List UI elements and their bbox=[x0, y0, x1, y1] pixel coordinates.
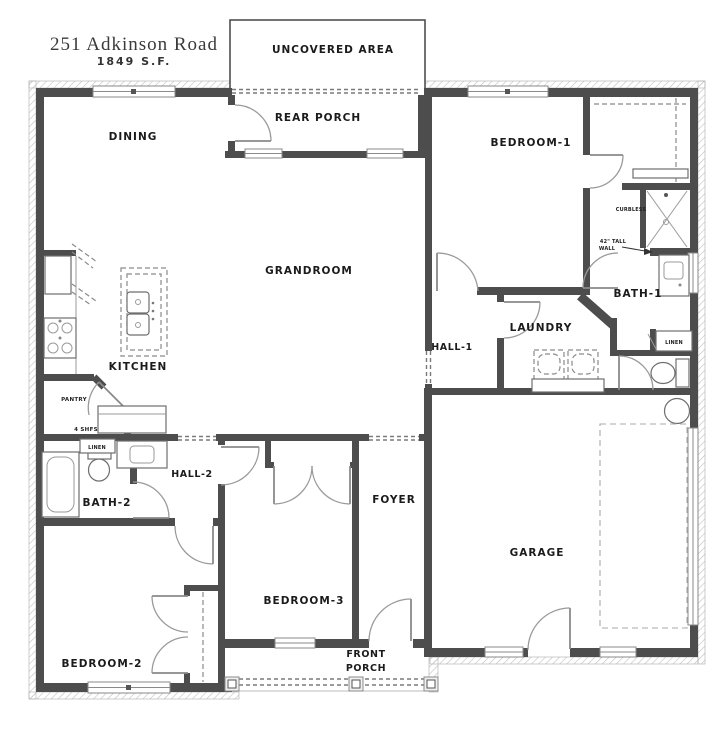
bedroom1-closet-door bbox=[590, 155, 623, 188]
range bbox=[44, 318, 76, 358]
garage-service-door bbox=[528, 608, 570, 650]
garage-label: GARAGE bbox=[510, 547, 565, 559]
front-door bbox=[369, 599, 411, 641]
kitchen-island bbox=[121, 268, 167, 356]
floor-plan-drawing: LINEN LINEN 251 A bbox=[0, 0, 720, 739]
hall1-label: HALL-1 bbox=[431, 342, 473, 353]
bath2-door bbox=[133, 482, 169, 518]
water-heater bbox=[665, 399, 690, 424]
front-porch-label-line2: PORCH bbox=[346, 663, 386, 674]
porch-column bbox=[225, 677, 239, 691]
refrigerator bbox=[45, 256, 71, 294]
tall-wall-label-line2: WALL bbox=[599, 246, 616, 252]
bath2-vanity-sink bbox=[117, 441, 167, 468]
garage-door-track-dashed bbox=[600, 424, 687, 628]
hall2-linen-closet: LINEN bbox=[80, 439, 115, 453]
uncovered-area-label: UNCOVERED AREA bbox=[272, 44, 394, 56]
bedroom3-window bbox=[275, 638, 315, 648]
garage-window-right bbox=[600, 647, 636, 657]
pantry-label: PANTRY bbox=[61, 397, 88, 403]
plan-address: 251 Adkinson Road bbox=[50, 34, 218, 55]
bath2-label: BATH-2 bbox=[83, 497, 132, 509]
tall-wall-label-line1: 42" TALL bbox=[600, 239, 627, 245]
bedroom2-closet-doors bbox=[152, 596, 188, 673]
floor-plan-page: LINEN LINEN 251 A bbox=[0, 0, 720, 739]
bedroom3-label: BEDROOM-3 bbox=[264, 595, 345, 607]
cased-openings bbox=[178, 351, 431, 440]
bath1-toilet bbox=[651, 359, 689, 387]
linen-hall2-label: LINEN bbox=[88, 445, 106, 451]
porch-column bbox=[349, 677, 363, 691]
garage-side-door-panel bbox=[688, 428, 698, 625]
bedroom3-door bbox=[221, 447, 259, 485]
bedroom2-door bbox=[175, 526, 213, 564]
kitchen-label: KITCHEN bbox=[109, 361, 168, 373]
porch-column bbox=[424, 677, 438, 691]
rear-porch-label: REAR PORCH bbox=[275, 112, 361, 124]
bedroom1-door bbox=[437, 253, 478, 291]
bedroom1-label: BEDROOM-1 bbox=[491, 137, 572, 149]
curbless-label: CURBLESS bbox=[616, 207, 647, 213]
toilet-room-door bbox=[619, 356, 653, 390]
bedroom2-label: BEDROOM-2 bbox=[62, 658, 143, 670]
pantry-shelves-label: 4 SHFS bbox=[74, 427, 98, 433]
garage-window-left bbox=[485, 647, 523, 657]
bedroom1-closet-shelving bbox=[594, 98, 688, 182]
foyer-label: FOYER bbox=[372, 494, 416, 506]
bath2-toilet bbox=[88, 451, 111, 481]
bath1-vanity-sink bbox=[659, 255, 689, 296]
bedroom3-closet-doors bbox=[274, 466, 350, 504]
bath2-tub bbox=[42, 452, 79, 517]
tall-wall-arrow bbox=[622, 247, 653, 255]
curbless-shower bbox=[647, 191, 687, 247]
rear-porch-window-right bbox=[367, 149, 403, 158]
rear-porch-window-left bbox=[245, 149, 282, 158]
rear-porch bbox=[232, 90, 418, 94]
dining-window bbox=[93, 86, 175, 97]
front-porch bbox=[225, 677, 438, 691]
kitchen-counter bbox=[98, 406, 166, 433]
plan-area: 1849 S.F. bbox=[97, 55, 172, 68]
dining-label: DINING bbox=[109, 131, 158, 143]
bedroom2-window bbox=[88, 682, 170, 693]
washer-dryer bbox=[532, 350, 604, 392]
rear-porch-door bbox=[235, 105, 271, 141]
bedroom1-window bbox=[468, 86, 548, 97]
linen-bath1-label: LINEN bbox=[665, 340, 683, 346]
front-porch-label-line1: FRONT bbox=[346, 649, 385, 660]
grandroom-label: GRANDROOM bbox=[265, 265, 353, 277]
laundry-label: LAUNDRY bbox=[510, 322, 573, 334]
hall2-label: HALL-2 bbox=[171, 469, 213, 480]
bath1-label: BATH-1 bbox=[614, 288, 663, 300]
